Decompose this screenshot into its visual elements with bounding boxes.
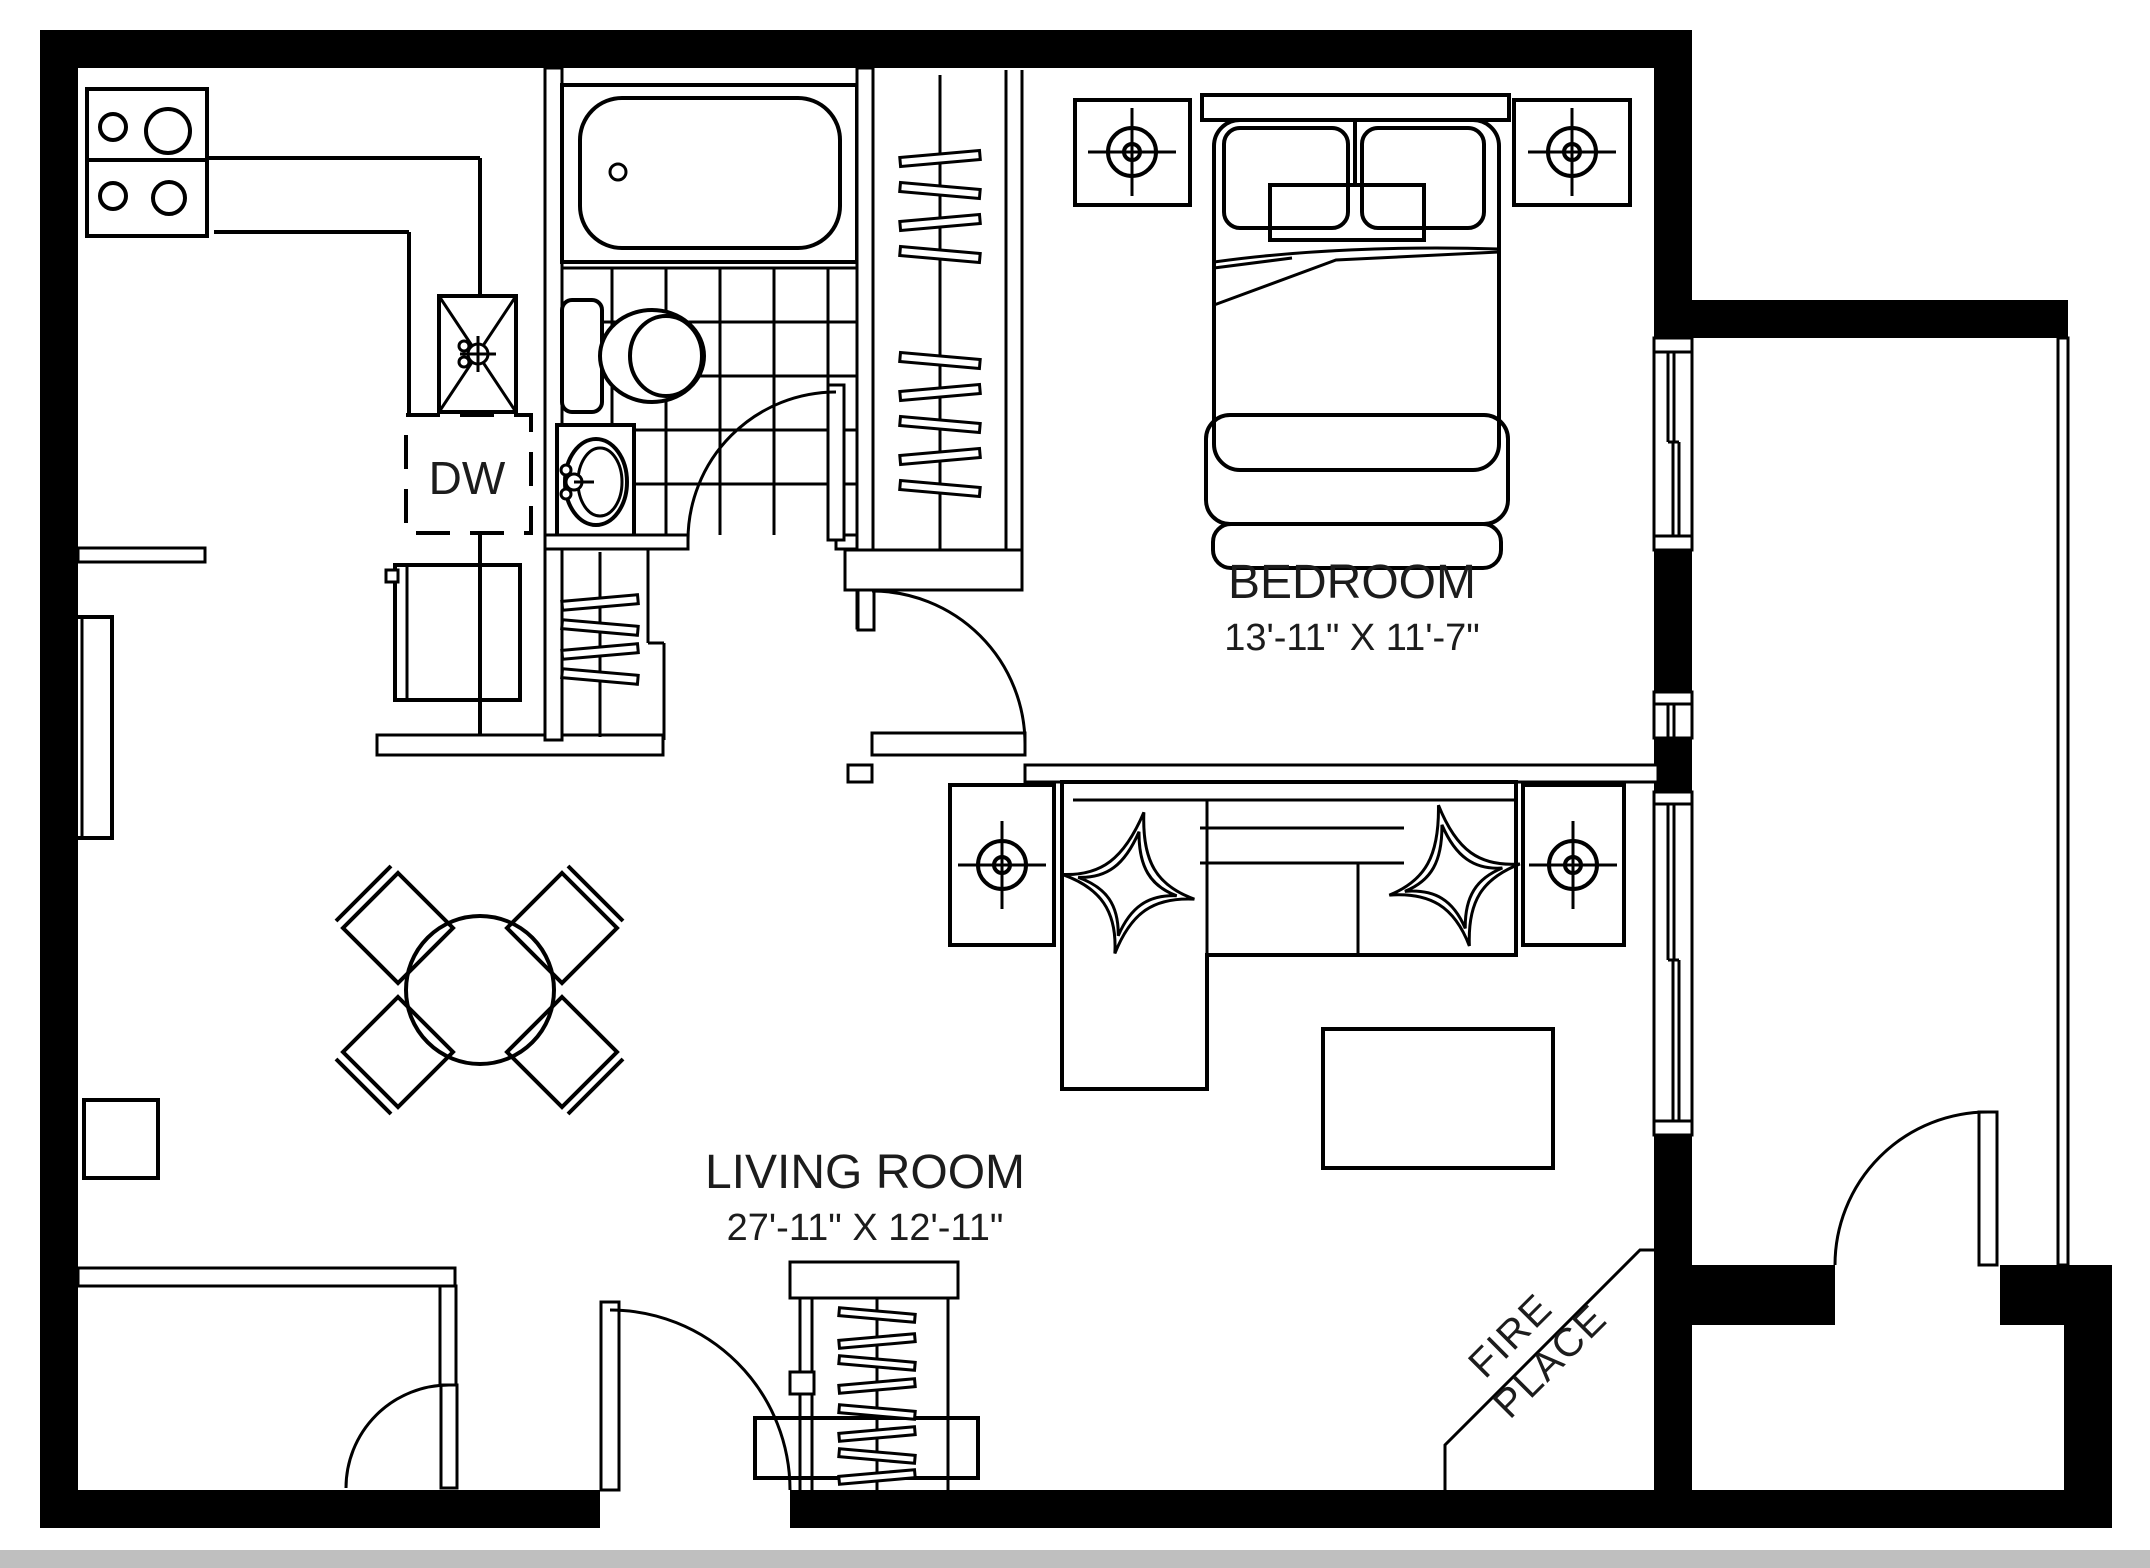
dining-table — [406, 916, 554, 1064]
living-room-furniture — [336, 782, 1624, 1478]
bedroom-door — [872, 591, 1025, 755]
floor-plan-canvas: DW — [0, 0, 2150, 1568]
bathroom-door — [688, 385, 844, 540]
window-sill — [1654, 692, 1692, 704]
wall-top — [40, 30, 1692, 68]
double-bed — [1202, 95, 1509, 568]
divider-wall — [1025, 765, 1658, 782]
burner-medium — [153, 182, 185, 214]
main-entry-door — [601, 1302, 790, 1490]
hall-closet — [562, 548, 664, 740]
door-swing-arc — [688, 392, 836, 540]
wall-entry-top-left — [1692, 1265, 1835, 1325]
entry-closet — [790, 1262, 958, 1490]
burner-small — [100, 183, 126, 209]
dishwasher-label: DW — [429, 452, 506, 504]
wall-entry-top-right — [2000, 1265, 2112, 1325]
lamp-icon — [958, 821, 1046, 909]
door-leaf — [1979, 1112, 1997, 1265]
bedroom-label: BEDROOM — [1228, 556, 1476, 609]
bathroom-right-wall — [857, 68, 873, 628]
wall-right-mid — [1654, 550, 1692, 692]
closet-right-wall — [648, 548, 664, 740]
dining-set — [336, 866, 623, 1114]
door-leaf — [601, 1302, 619, 1490]
dining-chair — [507, 997, 623, 1114]
windows-right-wall — [1654, 338, 1692, 1135]
bathtub — [562, 85, 857, 262]
lamp-icon — [1529, 821, 1617, 909]
door-swing-arc — [610, 1310, 790, 1490]
wall-right-pier — [1654, 738, 1692, 792]
wall-bottom-left — [40, 1490, 600, 1528]
burner-large — [146, 109, 190, 153]
door-leaf — [872, 733, 1025, 755]
den-right-wall — [440, 1286, 456, 1385]
door-swing-arc — [346, 1385, 449, 1488]
sheet-fold — [1214, 248, 1499, 305]
window-sill — [1654, 792, 1692, 804]
dishwasher: DW — [406, 415, 531, 533]
window-sill — [1654, 536, 1692, 550]
fireplace: FIRE PLACE — [1445, 1250, 1654, 1490]
den-room — [78, 1268, 457, 1488]
wall-right-lower — [1654, 1135, 1692, 1528]
closet-top — [790, 1262, 958, 1298]
star-pillow-left — [1047, 797, 1212, 969]
wall-balcony-top — [1692, 300, 2068, 338]
bathroom-south-wall — [545, 535, 688, 549]
wall-right-upper — [1654, 30, 1692, 338]
tub-drain — [610, 164, 626, 180]
wall-left — [40, 30, 78, 1528]
door-swing-arc — [872, 591, 1025, 744]
door-leaf — [441, 1385, 457, 1488]
kitchen-hall-wall — [377, 735, 663, 755]
bedroom-dimensions: 13'-11" X 11'-7" — [1224, 617, 1480, 659]
bathroom — [545, 68, 873, 740]
floor-plan: DW — [0, 0, 2150, 1568]
stove — [87, 89, 207, 236]
pillow-left — [1224, 128, 1348, 228]
window-sill — [1654, 1121, 1692, 1135]
door-jamb — [858, 590, 874, 630]
bathroom-left-wall — [545, 68, 562, 740]
balcony-railing — [2058, 338, 2068, 1265]
lamp-icon — [1528, 108, 1616, 196]
star-pillow-right — [1375, 793, 1532, 958]
toilet — [562, 300, 704, 412]
door-leaf — [828, 385, 844, 540]
dining-chair — [507, 866, 623, 983]
door-swing-arc — [1835, 1112, 1988, 1265]
room-labels: BEDROOM 13'-11" X 11'-7" LIVING ROOM 27'… — [705, 556, 1480, 1249]
lamp-icon — [1088, 108, 1176, 196]
refrigerator — [386, 565, 520, 700]
bathroom-vanity — [557, 425, 634, 540]
page-edge-strip — [0, 1550, 2150, 1568]
living-room-label: LIVING ROOM — [705, 1146, 1025, 1199]
burner-small — [100, 114, 126, 140]
kitchen-sink — [439, 296, 516, 412]
window-sill — [1654, 338, 1692, 352]
wall-bottom-right — [790, 1490, 2112, 1528]
balcony-entry-door — [1835, 1112, 1997, 1265]
coffee-table — [1323, 1029, 1553, 1168]
dining-chair — [336, 866, 453, 983]
wall-stub — [848, 765, 872, 782]
den-top-wall — [78, 1268, 455, 1286]
radiator-lower — [84, 1100, 158, 1178]
wall-entry-right — [2064, 1325, 2112, 1528]
dining-chair — [336, 997, 453, 1114]
headboard — [1202, 95, 1509, 120]
sectional-sofa — [1047, 782, 1532, 1089]
counter-end — [78, 548, 205, 562]
living-room-dimensions: 27'-11" X 12'-11" — [727, 1207, 1004, 1249]
closet-right-wall — [1006, 70, 1022, 560]
bedroom-furniture — [1075, 95, 1630, 568]
closet-bottom-wall — [845, 550, 1022, 590]
closet-jog — [790, 1372, 814, 1394]
